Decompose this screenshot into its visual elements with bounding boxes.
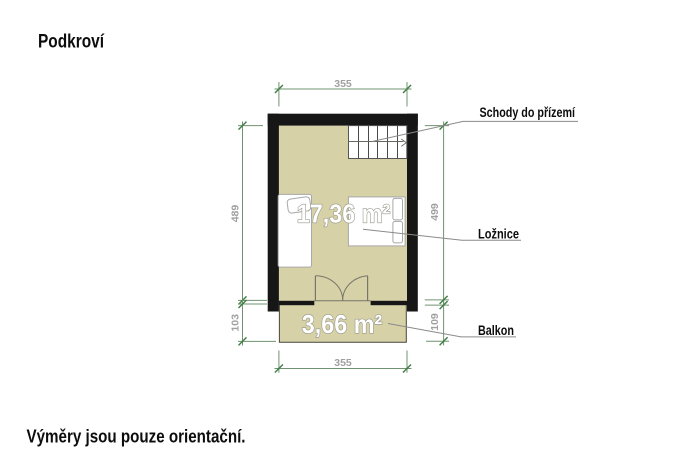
svg-text:Schody do přízemí: Schody do přízemí: [480, 105, 576, 120]
svg-text:103: 103: [230, 314, 242, 332]
svg-text:Podkroví: Podkroví: [38, 31, 105, 52]
svg-text:3,66 m²: 3,66 m²: [302, 309, 383, 339]
svg-text:Ložnice: Ložnice: [478, 227, 519, 242]
svg-text:Výměry jsou pouze orientační.: Výměry jsou pouze orientační.: [27, 426, 246, 447]
svg-text:109: 109: [429, 313, 441, 331]
svg-text:499: 499: [429, 203, 441, 221]
svg-text:17,36 m²: 17,36 m²: [297, 198, 391, 228]
svg-text:489: 489: [230, 205, 242, 223]
svg-text:Balkon: Balkon: [478, 323, 514, 338]
svg-text:355: 355: [334, 357, 352, 369]
svg-text:355: 355: [334, 78, 352, 90]
